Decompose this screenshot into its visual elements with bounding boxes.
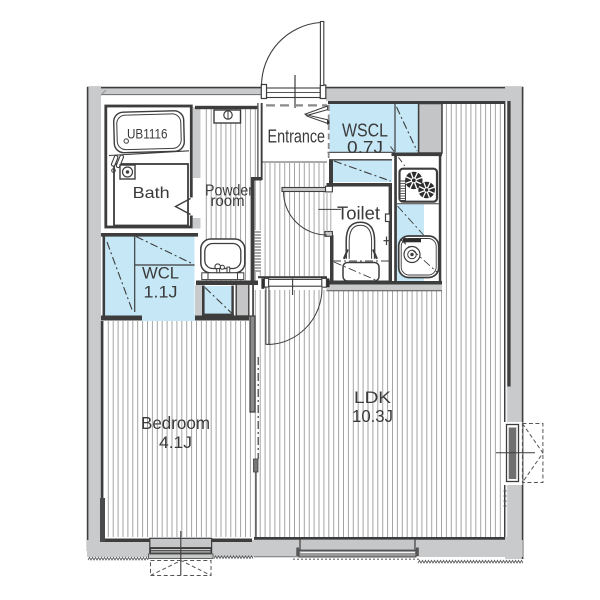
svg-text:0.7J: 0.7J (347, 137, 383, 157)
svg-text:10.3J: 10.3J (352, 406, 393, 426)
svg-text:WCL: WCL (142, 263, 179, 282)
svg-text:Toilet: Toilet (337, 203, 380, 223)
svg-text:Entrance: Entrance (268, 125, 326, 146)
svg-text:LDK: LDK (354, 388, 391, 407)
svg-text:4.1J: 4.1J (159, 434, 192, 452)
svg-text:UB1116: UB1116 (127, 127, 168, 142)
svg-text:Bedroom: Bedroom (141, 413, 210, 433)
svg-text:room: room (211, 193, 245, 210)
svg-text:1.1J: 1.1J (144, 282, 178, 301)
svg-text:Bath: Bath (133, 185, 170, 202)
